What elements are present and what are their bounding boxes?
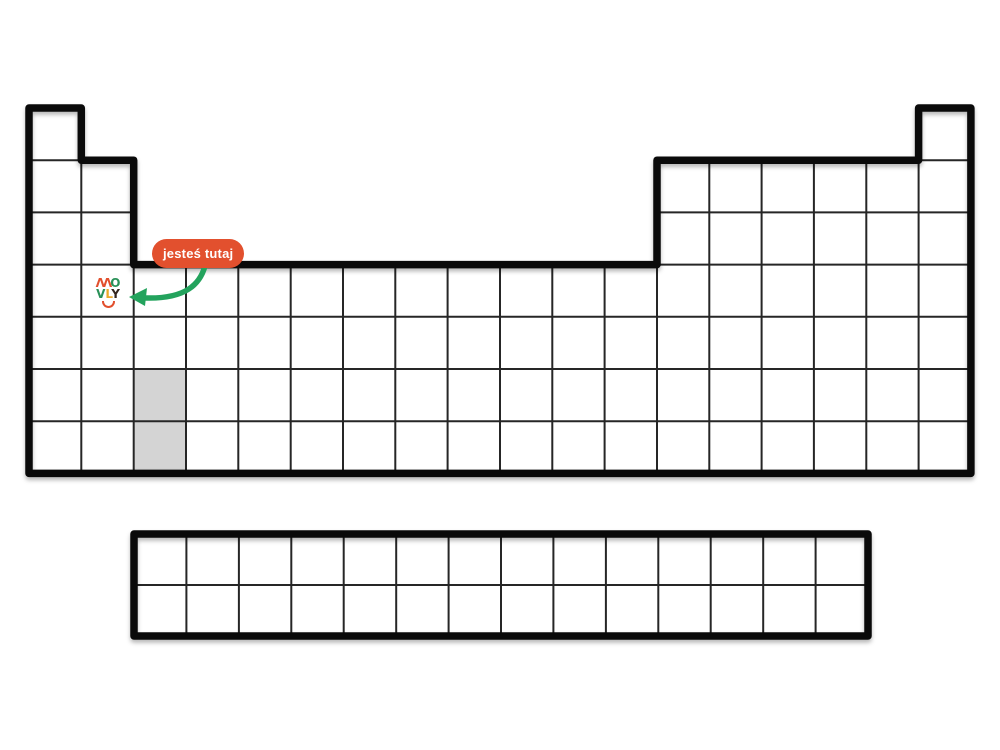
logo-letter-v: V	[96, 287, 105, 301]
arrow-curve	[146, 266, 205, 298]
you-are-here-badge: jesteś tutaj	[152, 239, 244, 268]
logo-letter-y: Y	[111, 287, 120, 301]
arrow-head	[129, 288, 147, 306]
movly-logo: ΛΛO VLY	[89, 278, 127, 308]
you-are-here-arrow	[129, 266, 205, 306]
logo-line-vly: VLY	[89, 289, 127, 300]
shaded-cell-bottom	[134, 421, 186, 473]
periodic-table-diagram	[0, 0, 1000, 750]
worksheet-canvas: jesteś tutaj ΛΛO VLY	[0, 0, 1000, 750]
logo-smile-icon	[102, 301, 115, 308]
f-block-gridlines	[134, 534, 868, 636]
shaded-cell-top	[134, 369, 186, 421]
